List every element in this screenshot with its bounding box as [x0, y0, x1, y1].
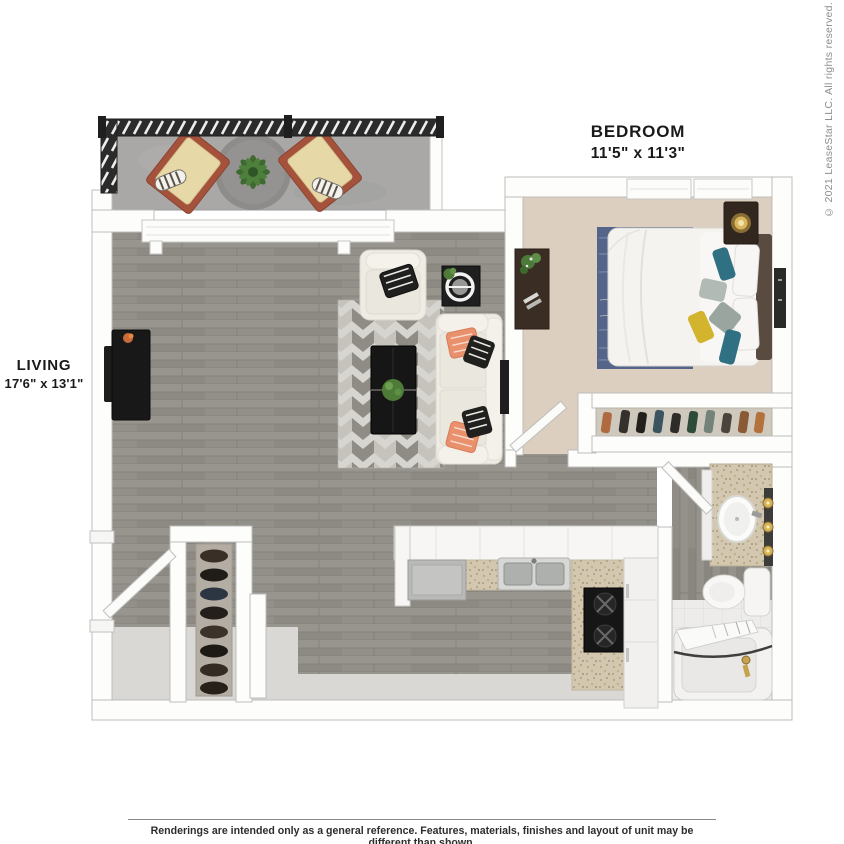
- railing-post: [436, 116, 444, 138]
- railing-post: [98, 116, 106, 138]
- dishwasher: [408, 560, 466, 600]
- bedroom-name: BEDROOM: [557, 121, 719, 143]
- closet-front: [592, 436, 792, 452]
- wall-closet-top: [592, 393, 792, 408]
- wall-art: [774, 268, 786, 328]
- window-jamb: [338, 241, 350, 254]
- tv-console: [112, 330, 150, 420]
- wall-mounted-tv: [500, 360, 509, 414]
- wall-bottom: [92, 700, 792, 720]
- console-decor: [129, 334, 134, 339]
- patio-plant: [215, 134, 291, 210]
- door-frame: [90, 620, 114, 632]
- nightstand: [724, 202, 758, 244]
- balcony: [107, 125, 442, 216]
- entry-closet-top: [170, 526, 252, 542]
- armchair: [360, 250, 426, 320]
- vanity-lights: [763, 488, 773, 566]
- living-window: [142, 220, 394, 242]
- living-room-label: LIVING 17'6" x 13'1": [0, 356, 88, 392]
- wine-rack: [196, 544, 232, 696]
- faucet: [531, 558, 536, 563]
- bathtub: [674, 620, 772, 700]
- burner: [594, 625, 616, 647]
- wall-bedroom-bottom: [505, 450, 516, 467]
- bedroom-desk: [515, 249, 549, 329]
- bedroom-room-label: BEDROOM 11'5" x 11'3": [557, 121, 719, 164]
- wall-living-top-right: [386, 210, 507, 232]
- living-name: LIVING: [0, 356, 88, 376]
- railing-post: [284, 115, 292, 138]
- burner: [594, 593, 616, 615]
- living-dimensions: 17'6" x 13'1": [0, 376, 88, 393]
- balcony-side-wall: [430, 128, 442, 210]
- refrigerator: [624, 558, 658, 708]
- coffee-table: [371, 346, 416, 434]
- sofa: [436, 314, 502, 464]
- kitchen-counter: [394, 526, 658, 560]
- wall-left: [92, 190, 112, 720]
- double-sink: [498, 558, 570, 590]
- window-jamb: [150, 241, 162, 254]
- door-frame: [90, 531, 114, 543]
- range-stove: [584, 588, 626, 652]
- disclaimer-text: Renderings are intended only as a genera…: [128, 819, 716, 844]
- copyright-notice: © 2021 LeaseStar LLC. All rights reserve…: [823, 8, 835, 218]
- side-table: [442, 266, 480, 306]
- shoe-closet: [592, 408, 792, 452]
- bedroom-dimensions: 11'5" x 11'3": [557, 144, 719, 164]
- entry-panel: [250, 594, 266, 698]
- bathroom-vanity: [702, 464, 772, 566]
- tub-faucet: [742, 656, 750, 664]
- floorplan-page: BEDROOM 11'5" x 11'3" LIVING 17'6" x 13'…: [0, 0, 844, 844]
